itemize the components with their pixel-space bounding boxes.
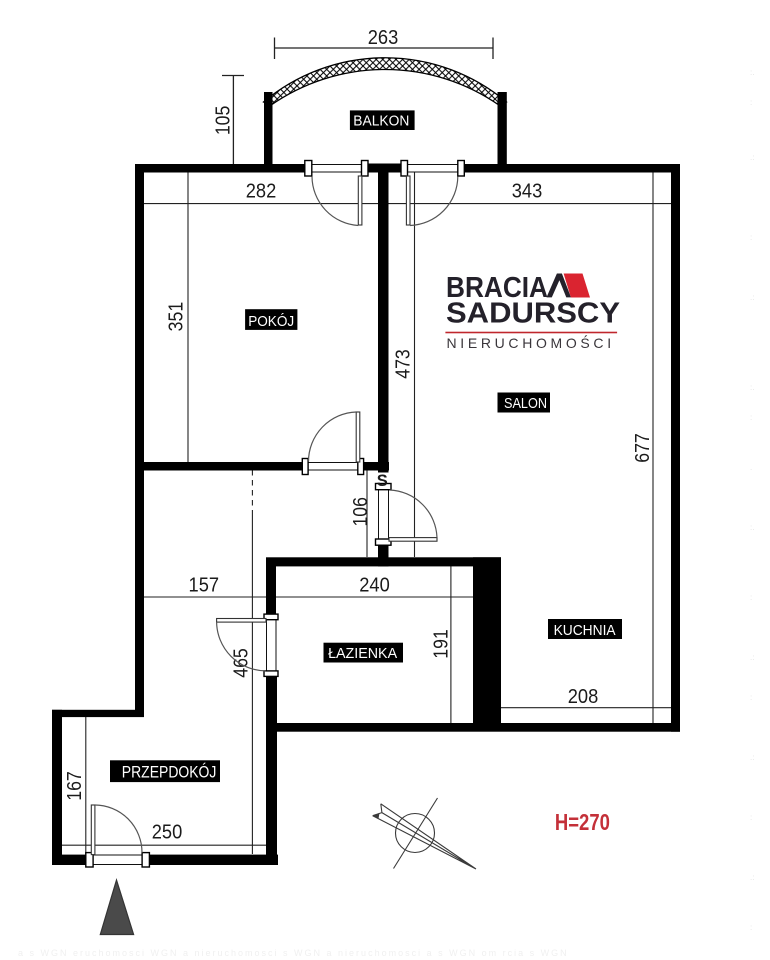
svg-text:.: .: [750, 463, 752, 472]
svg-text::: :: [750, 923, 752, 932]
svg-text:351: 351: [166, 302, 188, 332]
svg-text::: :: [750, 593, 752, 602]
svg-text:SADURSCY: SADURSCY: [446, 298, 620, 330]
svg-text:263: 263: [368, 27, 399, 49]
svg-text:SALON: SALON: [504, 395, 547, 412]
svg-text:105: 105: [213, 106, 235, 135]
svg-text:.:: .:: [750, 293, 754, 302]
svg-text:ŁAZIENKA: ŁAZIENKA: [328, 645, 397, 662]
svg-text:NIERUCHOMOŚCI: NIERUCHOMOŚCI: [447, 334, 616, 351]
svg-text:167: 167: [64, 771, 86, 801]
svg-text::.: :.: [750, 68, 754, 77]
svg-text::.: :.: [750, 523, 754, 532]
svg-text:157: 157: [189, 575, 220, 597]
svg-text:282: 282: [246, 181, 277, 203]
svg-text:208: 208: [568, 686, 599, 708]
svg-text:a s WGN eruchomosci WGN a nier: a s WGN eruchomosci WGN a nieruchomosci …: [18, 948, 569, 958]
svg-text:PRZEPDOKÓJ: PRZEPDOKÓJ: [122, 763, 217, 782]
svg-text:.:: .:: [750, 653, 754, 662]
svg-text:677: 677: [632, 433, 654, 463]
svg-text:250: 250: [152, 822, 183, 844]
svg-text:.:: .:: [750, 153, 754, 162]
svg-text::: :: [750, 233, 752, 242]
svg-text:POKÓJ: POKÓJ: [248, 313, 294, 330]
svg-text:BALKON: BALKON: [353, 113, 409, 130]
svg-text:473: 473: [393, 349, 415, 379]
svg-text::.: :.: [750, 383, 754, 392]
svg-text:H=270: H=270: [555, 809, 610, 835]
svg-text::: :: [750, 693, 752, 702]
svg-text::: :: [750, 413, 752, 422]
svg-text::: :: [750, 813, 752, 822]
svg-text:240: 240: [359, 575, 390, 597]
svg-text:465: 465: [231, 648, 253, 678]
svg-text:191: 191: [431, 629, 453, 659]
svg-text:S: S: [377, 472, 388, 490]
svg-text::: :: [750, 98, 752, 107]
svg-text:.:: .:: [750, 753, 754, 762]
svg-text:106: 106: [350, 497, 372, 527]
svg-text:343: 343: [512, 181, 543, 203]
svg-text:KUCHNIA: KUCHNIA: [554, 622, 616, 639]
svg-text:.:: .:: [750, 873, 754, 882]
